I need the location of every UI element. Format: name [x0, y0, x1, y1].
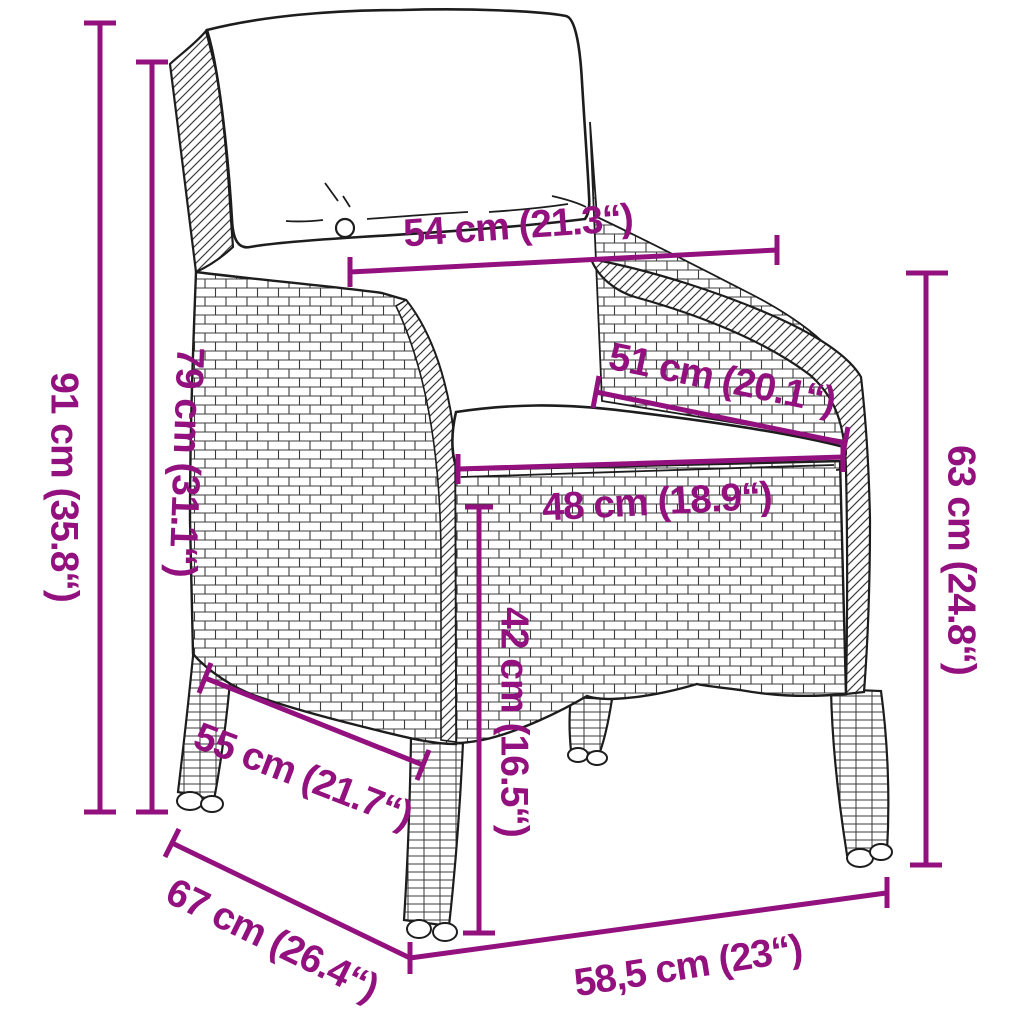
dim-label-seat-height: 42 cm (16.5“): [495, 607, 534, 837]
cushion-button: [336, 219, 354, 237]
dim-label-total-height: 91 cm (35.8“): [45, 372, 84, 602]
back-right-leg: [568, 697, 612, 765]
dim-label-backrest-height: 63 cm (24.8“): [942, 445, 981, 675]
chair-illustration: [0, 0, 1024, 1024]
front-left-leg: [404, 738, 463, 941]
front-right-leg: [831, 689, 892, 867]
dim-line-total-width: [410, 877, 887, 958]
dim-label-armrest-height: 79 cm (31.1“): [163, 346, 210, 577]
product-dimension-image: 91 cm (35.8“) 79 cm (31.1“) 54 cm (21.3“…: [0, 0, 1024, 1024]
dim-line-armrest-height: [136, 62, 168, 812]
dim-line-total-height: [84, 23, 116, 812]
